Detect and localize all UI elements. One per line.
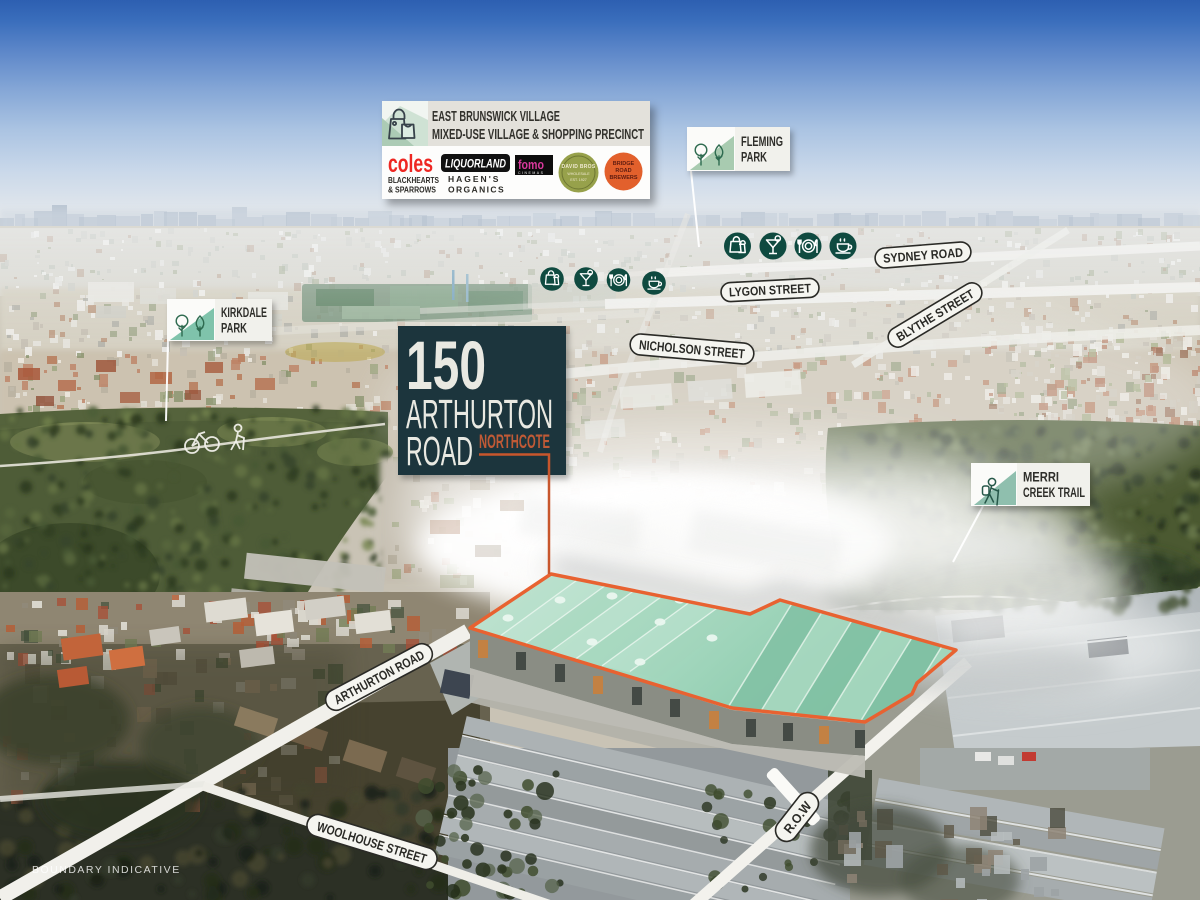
- svg-text:ROAD: ROAD: [615, 168, 631, 174]
- svg-text:& SPARROWS: & SPARROWS: [388, 185, 436, 195]
- svg-text:EST. 1927: EST. 1927: [570, 178, 587, 182]
- svg-text:CREEK TRAIL: CREEK TRAIL: [1023, 485, 1085, 500]
- svg-text:WHOLESALE: WHOLESALE: [567, 172, 590, 176]
- svg-text:PARK: PARK: [221, 321, 247, 336]
- svg-text:EAST BRUNSWICK VILLAGE: EAST BRUNSWICK VILLAGE: [432, 108, 560, 125]
- svg-text:LIQUORLAND: LIQUORLAND: [445, 157, 506, 171]
- svg-text:coles: coles: [388, 150, 433, 178]
- svg-text:BOUNDARY INDICATIVE: BOUNDARY INDICATIVE: [32, 864, 181, 876]
- svg-text:MIXED-USE VILLAGE & SHOPPING P: MIXED-USE VILLAGE & SHOPPING PRECINCT: [432, 126, 644, 143]
- svg-text:DAVID BROS: DAVID BROS: [561, 164, 595, 170]
- svg-text:PARK: PARK: [741, 150, 767, 165]
- svg-text:FLEMING: FLEMING: [741, 134, 783, 149]
- svg-text:KIRKDALE: KIRKDALE: [221, 305, 267, 320]
- svg-text:ROAD: ROAD: [406, 428, 473, 474]
- svg-text:HAGEN'S: HAGEN'S: [448, 174, 500, 184]
- svg-text:MERRI: MERRI: [1023, 470, 1059, 485]
- svg-text:ORGANICS: ORGANICS: [448, 185, 505, 195]
- svg-text:CINEMAS: CINEMAS: [518, 171, 544, 175]
- svg-text:BREWERS: BREWERS: [609, 175, 637, 181]
- svg-text:NORTHCOTE: NORTHCOTE: [479, 432, 550, 453]
- svg-text:fomo: fomo: [518, 157, 544, 172]
- svg-text:BLACKHEARTS: BLACKHEARTS: [388, 175, 439, 185]
- svg-text:BRIDGE: BRIDGE: [613, 161, 635, 167]
